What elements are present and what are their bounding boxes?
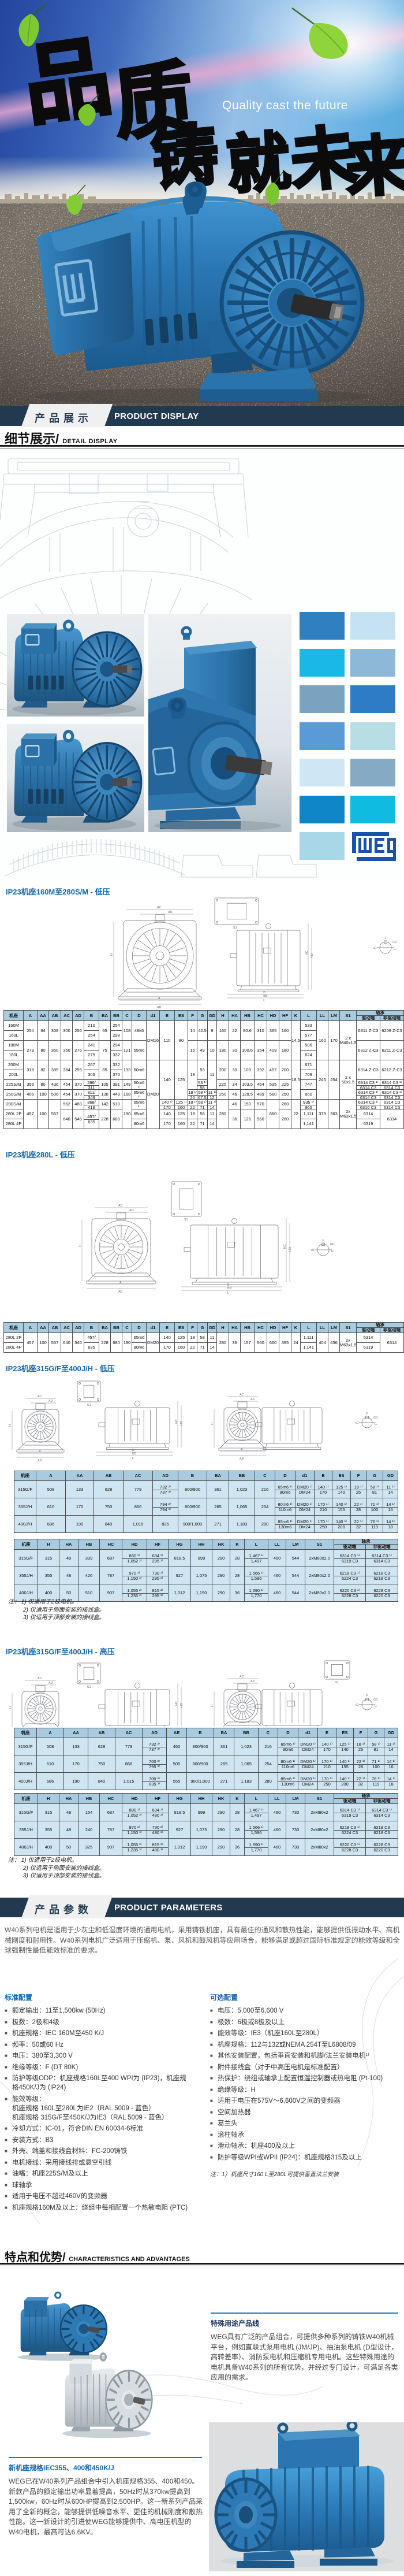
svg-text:BB: BB: [132, 1452, 137, 1456]
svg-text:AD: AD: [129, 1209, 134, 1212]
svg-text:AC: AC: [118, 1204, 123, 1208]
svg-text:BB: BB: [263, 994, 268, 998]
svg-text:d1: d1: [356, 1703, 359, 1707]
svg-text:d1: d1: [356, 1421, 359, 1425]
svg-text:HC: HC: [175, 1419, 178, 1424]
svg-text:F: F: [366, 1694, 368, 1698]
svg-text:GD: GD: [392, 941, 397, 944]
svg-text:AB: AB: [157, 1006, 162, 1009]
svg-text:HC: HC: [305, 951, 309, 955]
svg-text:HD: HD: [289, 1247, 292, 1252]
svg-text:A: A: [119, 1281, 122, 1285]
svg-text:H: H: [110, 953, 114, 956]
svg-text:S1: S1: [233, 926, 237, 930]
svg-text:AC: AC: [240, 1675, 244, 1679]
svg-text:HC: HC: [283, 1244, 287, 1249]
svg-text:H: H: [211, 1705, 214, 1707]
svg-text:AB: AB: [240, 1457, 244, 1461]
svg-text:S1: S1: [87, 1404, 91, 1407]
svg-text:H: H: [9, 1706, 12, 1709]
svg-text:HC: HC: [175, 1701, 178, 1706]
svg-text:AC: AC: [157, 906, 162, 910]
svg-text:AB: AB: [118, 1290, 123, 1294]
svg-text:F: F: [366, 1412, 368, 1416]
svg-text:F: F: [385, 937, 387, 940]
svg-text:H: H: [9, 1424, 12, 1427]
svg-text:G: G: [375, 1423, 377, 1426]
svg-text:HD: HD: [180, 1703, 184, 1708]
svg-text:AC: AC: [240, 1393, 244, 1397]
svg-text:AB: AB: [38, 1459, 42, 1463]
svg-text:G: G: [375, 1705, 377, 1708]
svg-text:L: L: [263, 999, 265, 1003]
svg-text:AD: AD: [48, 1400, 53, 1403]
svg-text:S1: S1: [184, 1218, 188, 1222]
svg-text:AD: AD: [48, 1682, 53, 1685]
svg-text:A: A: [39, 1450, 41, 1453]
svg-text:A: A: [158, 997, 160, 1000]
svg-text:S1: S1: [87, 1686, 91, 1689]
svg-text:d1: d1: [373, 946, 377, 950]
svg-text:AD: AD: [250, 1398, 255, 1401]
svg-text:GD: GD: [330, 1243, 335, 1246]
svg-text:S1: S1: [335, 1681, 339, 1684]
svg-text:BB: BB: [227, 1287, 232, 1290]
svg-text:AD: AD: [250, 1680, 255, 1683]
svg-text:HD: HD: [311, 953, 314, 958]
svg-text:A: A: [241, 1448, 243, 1452]
svg-text:L: L: [227, 1291, 229, 1295]
svg-text:G: G: [394, 948, 396, 951]
svg-text:GD: GD: [373, 1416, 378, 1420]
svg-text:AC: AC: [38, 1677, 42, 1680]
svg-text:AD: AD: [168, 911, 173, 914]
svg-text:H: H: [211, 1423, 214, 1425]
svg-text:G: G: [331, 1250, 334, 1253]
svg-text:d1: d1: [311, 1249, 315, 1252]
svg-text:AC: AC: [38, 1395, 42, 1398]
svg-text:L: L: [132, 1457, 134, 1460]
svg-text:HD: HD: [180, 1421, 184, 1426]
svg-text:F: F: [323, 1239, 324, 1242]
svg-text:H: H: [78, 1245, 82, 1247]
svg-text:GD: GD: [373, 1698, 378, 1702]
